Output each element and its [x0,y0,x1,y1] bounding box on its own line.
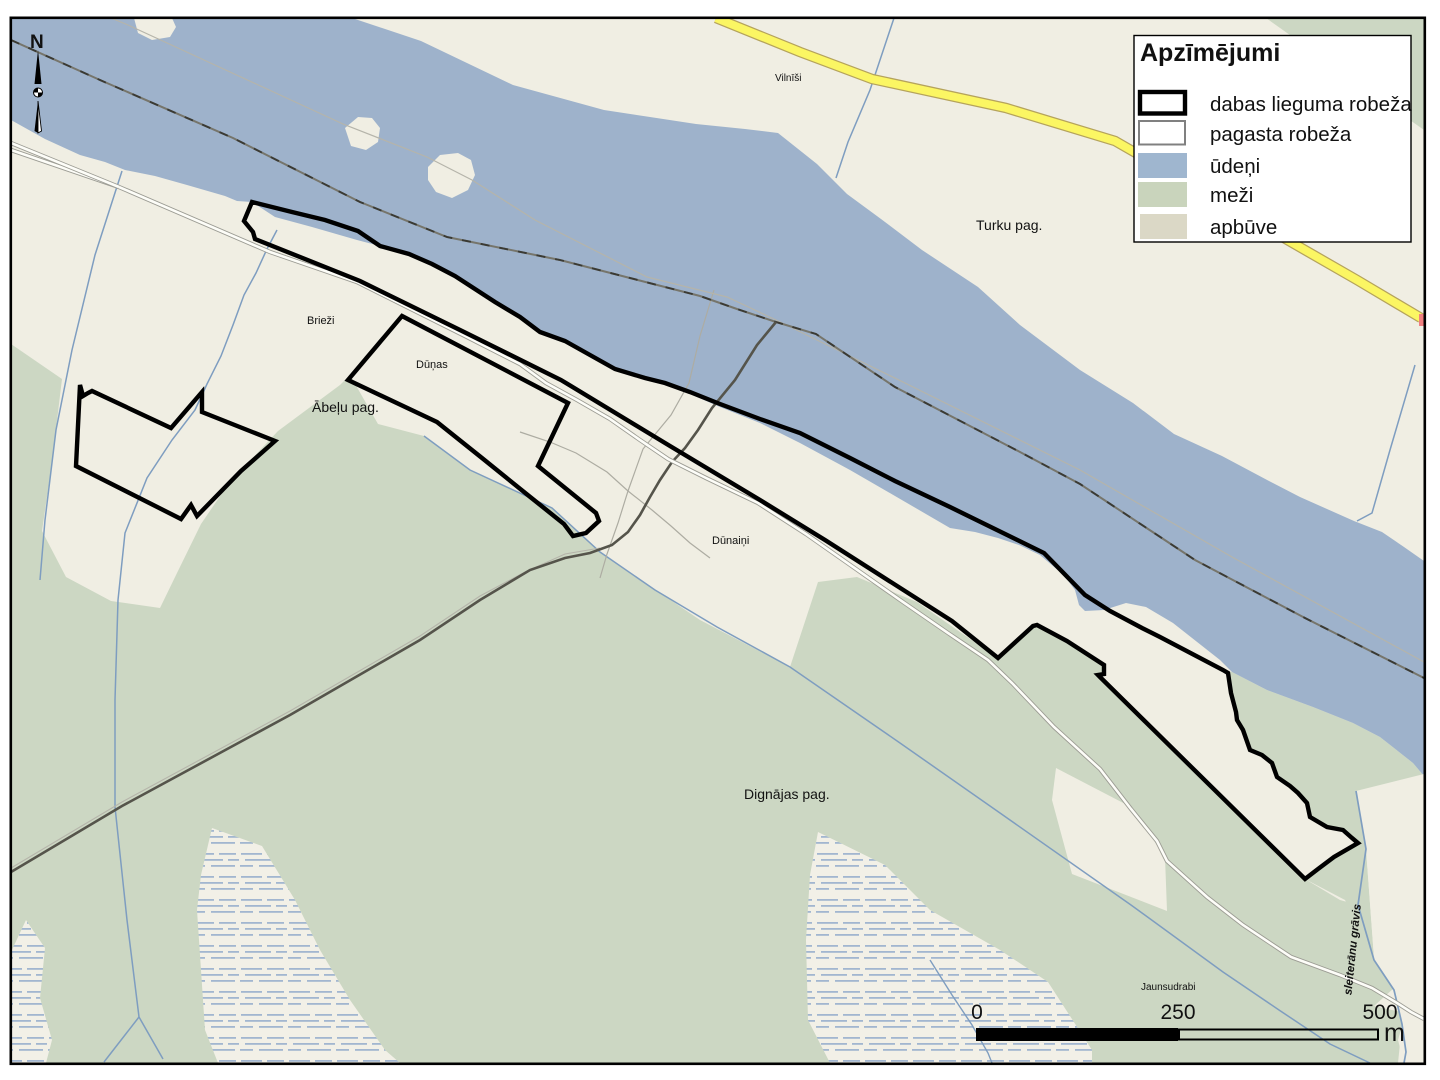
svg-text:pagasta robeža: pagasta robeža [1210,123,1352,146]
svg-text:Dūnaiņi: Dūnaiņi [712,535,749,547]
svg-text:ūdeņi: ūdeņi [1210,155,1260,178]
svg-text:meži: meži [1210,184,1253,207]
svg-text:250: 250 [1160,1001,1195,1024]
svg-text:apbūve: apbūve [1210,216,1277,239]
svg-text:Dūņas: Dūņas [416,359,448,371]
svg-text:m: m [1384,1019,1405,1047]
svg-text:dabas lieguma robeža: dabas lieguma robeža [1210,93,1412,116]
svg-text:Jaunsudrabi: Jaunsudrabi [1141,982,1195,993]
svg-text:N: N [30,32,44,53]
svg-text:Turku pag.: Turku pag. [976,217,1042,233]
svg-text:Brieži: Brieži [307,315,335,327]
svg-text:Dignājas pag.: Dignājas pag. [744,786,830,802]
svg-text:0: 0 [971,1001,983,1024]
svg-text:Ābeļu pag.: Ābeļu pag. [312,399,379,415]
svg-text:Vilnīši: Vilnīši [775,73,802,84]
svg-text:Apzīmējumi: Apzīmējumi [1140,39,1280,67]
